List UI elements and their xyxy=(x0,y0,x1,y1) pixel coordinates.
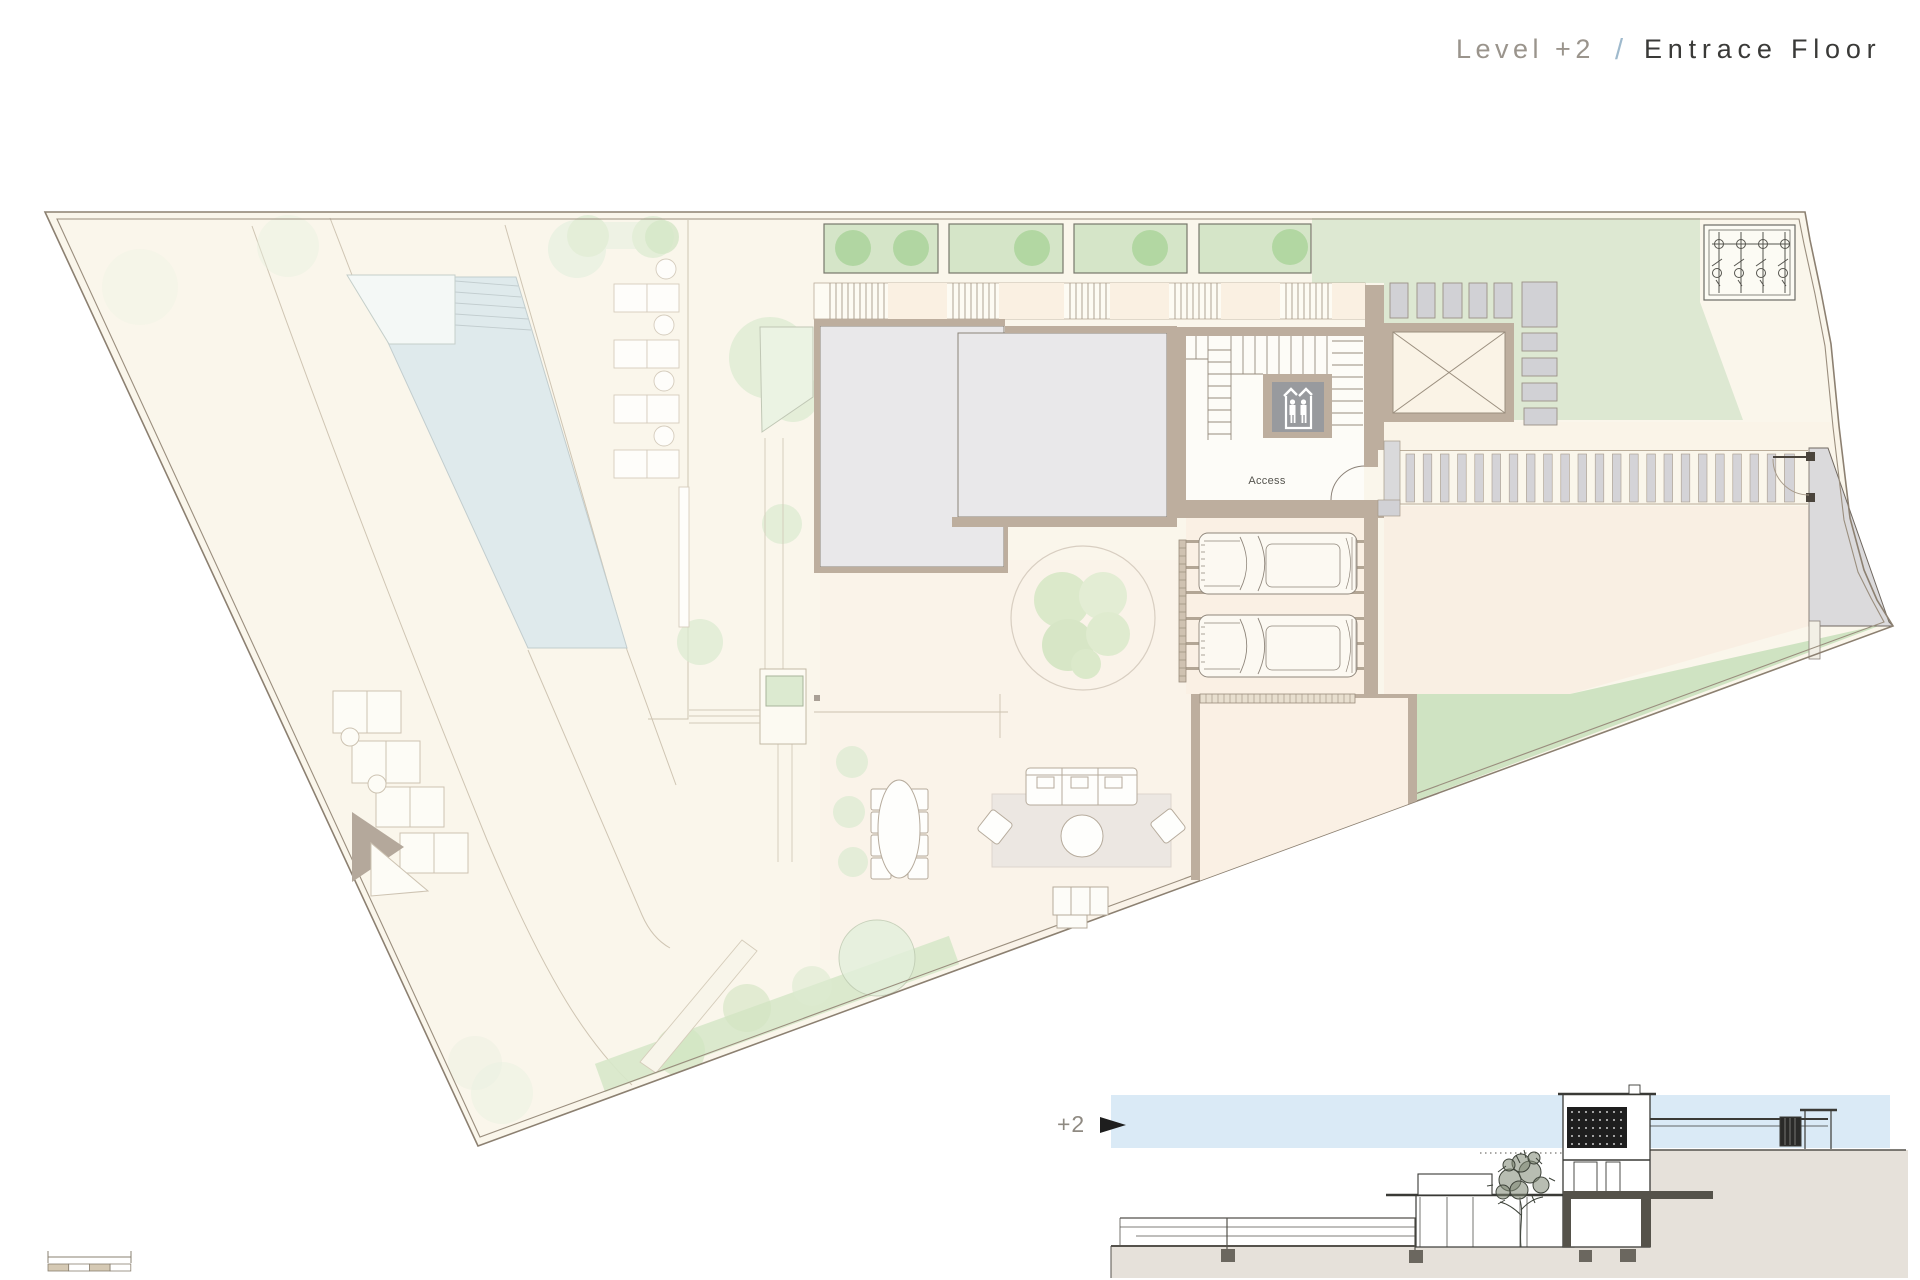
svg-text:Level +2: Level +2 xyxy=(1456,34,1595,64)
svg-text:+2: +2 xyxy=(1057,1111,1085,1137)
svg-text:Access: Access xyxy=(1248,475,1285,487)
svg-text:Entrace Floor: Entrace Floor xyxy=(1644,34,1881,64)
svg-text:/: / xyxy=(1615,34,1624,66)
